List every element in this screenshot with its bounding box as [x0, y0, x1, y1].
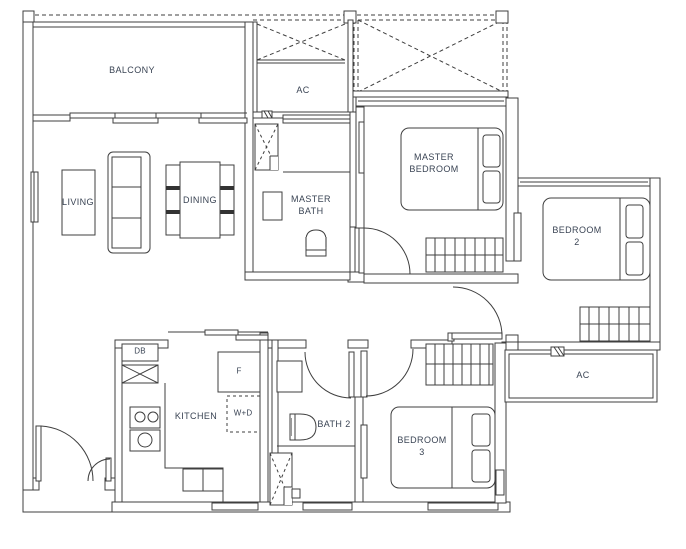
dining-chairs-right: [220, 165, 234, 235]
master-bedroom-furniture: [401, 128, 503, 272]
room-label-balcony: BALCONY: [109, 64, 155, 76]
room-label-kitchen: KITCHEN: [175, 410, 217, 422]
fixture-label-washer-dryer: W+D: [234, 409, 253, 420]
room-label-ac-upper: AC: [296, 84, 309, 96]
vanity: [263, 192, 282, 220]
toilet: [290, 414, 316, 440]
fixture-label-db: DB: [134, 347, 146, 358]
bedroom-3-furniture: [391, 344, 495, 488]
pillow: [472, 450, 490, 482]
vanity: [277, 361, 302, 392]
balcony-sliding-door: [33, 113, 247, 123]
master-bath-fittings: [255, 111, 326, 256]
toilet: [306, 230, 326, 256]
floor-plan: BALCONY AC LIVING DINING MASTER BATH MAS…: [0, 0, 686, 549]
bedroom-2-furniture: [543, 198, 650, 341]
sofa: [108, 152, 150, 253]
dining-chairs-left: [166, 165, 180, 235]
pillow: [626, 205, 643, 238]
pillow: [626, 242, 643, 275]
room-label-master-bedroom: MASTER BEDROOM: [409, 151, 458, 175]
room-label-master-bath: MASTER BATH: [291, 193, 331, 217]
room-label-living: LIVING: [62, 196, 94, 208]
pillow: [483, 135, 500, 167]
bath-2-fittings: [270, 361, 355, 505]
pillow: [472, 414, 490, 446]
fixture-label-fridge: F: [236, 367, 241, 378]
room-label-bedroom-3: BEDROOM 3: [397, 434, 446, 458]
floor-plan-drawing: [0, 0, 686, 549]
room-label-bath-2: BATH 2: [317, 418, 350, 430]
pillow: [483, 171, 500, 203]
room-label-ac-lower: AC: [576, 369, 589, 381]
room-label-bedroom-2: BEDROOM 2: [552, 224, 601, 248]
room-label-dining: DINING: [183, 194, 217, 206]
kitchen-sliding-door: [168, 330, 268, 340]
